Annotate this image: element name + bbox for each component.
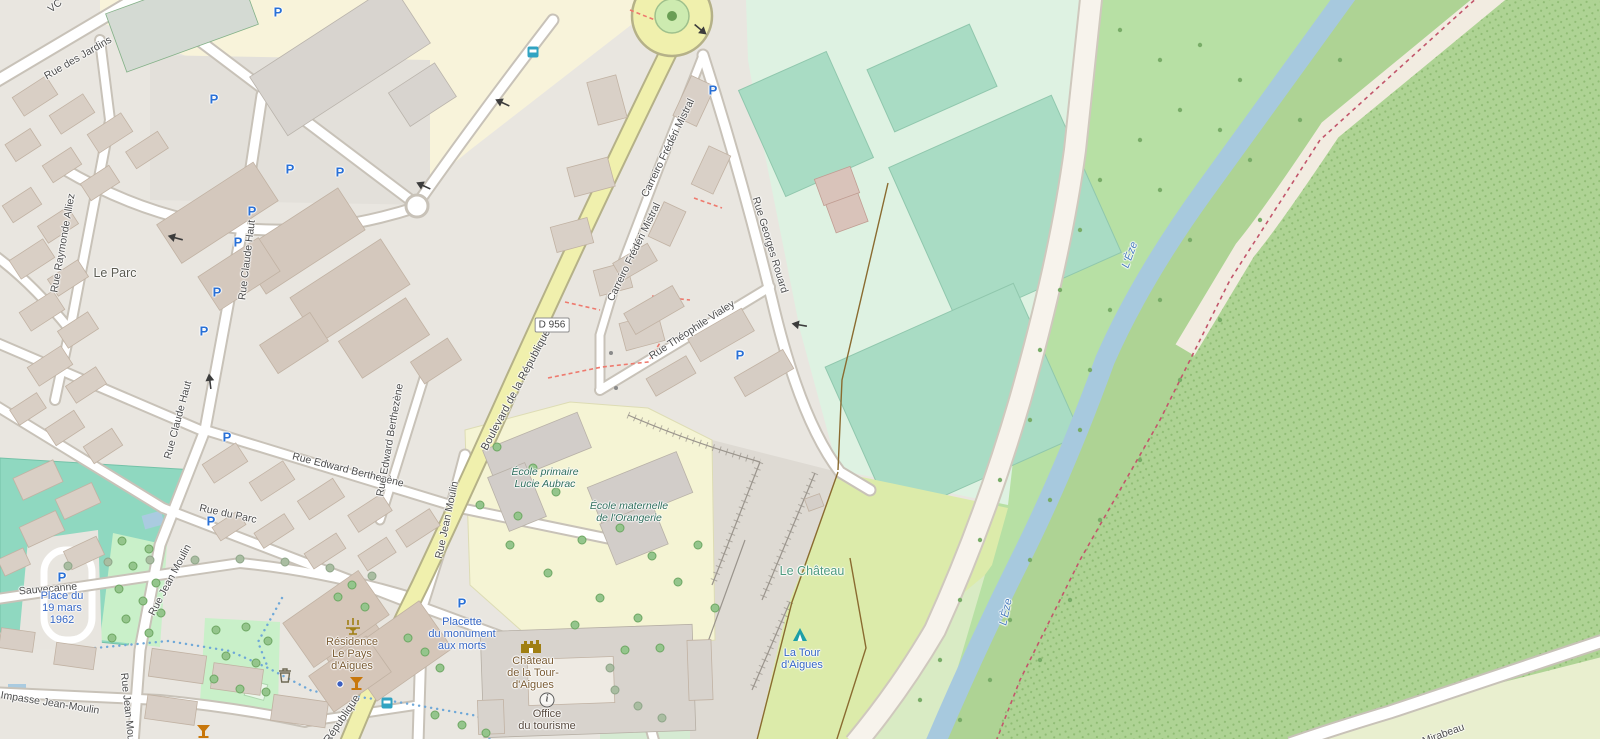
road-ref-badge-d956: D 956 — [535, 318, 570, 333]
map-viewport[interactable]: VC Rue des Jardins Rue Raymonde Alliez R… — [0, 0, 1600, 739]
map-canvas — [0, 0, 1600, 739]
bus-stop-icon — [528, 47, 539, 58]
poi-dot-blue — [337, 681, 343, 687]
bus-stop-icon — [382, 698, 393, 709]
poi-dot — [614, 386, 618, 390]
poi-dot — [609, 351, 613, 355]
castle-icon — [521, 640, 541, 653]
info-tourism-icon: i — [540, 693, 555, 708]
mini-roundabout — [406, 195, 428, 217]
